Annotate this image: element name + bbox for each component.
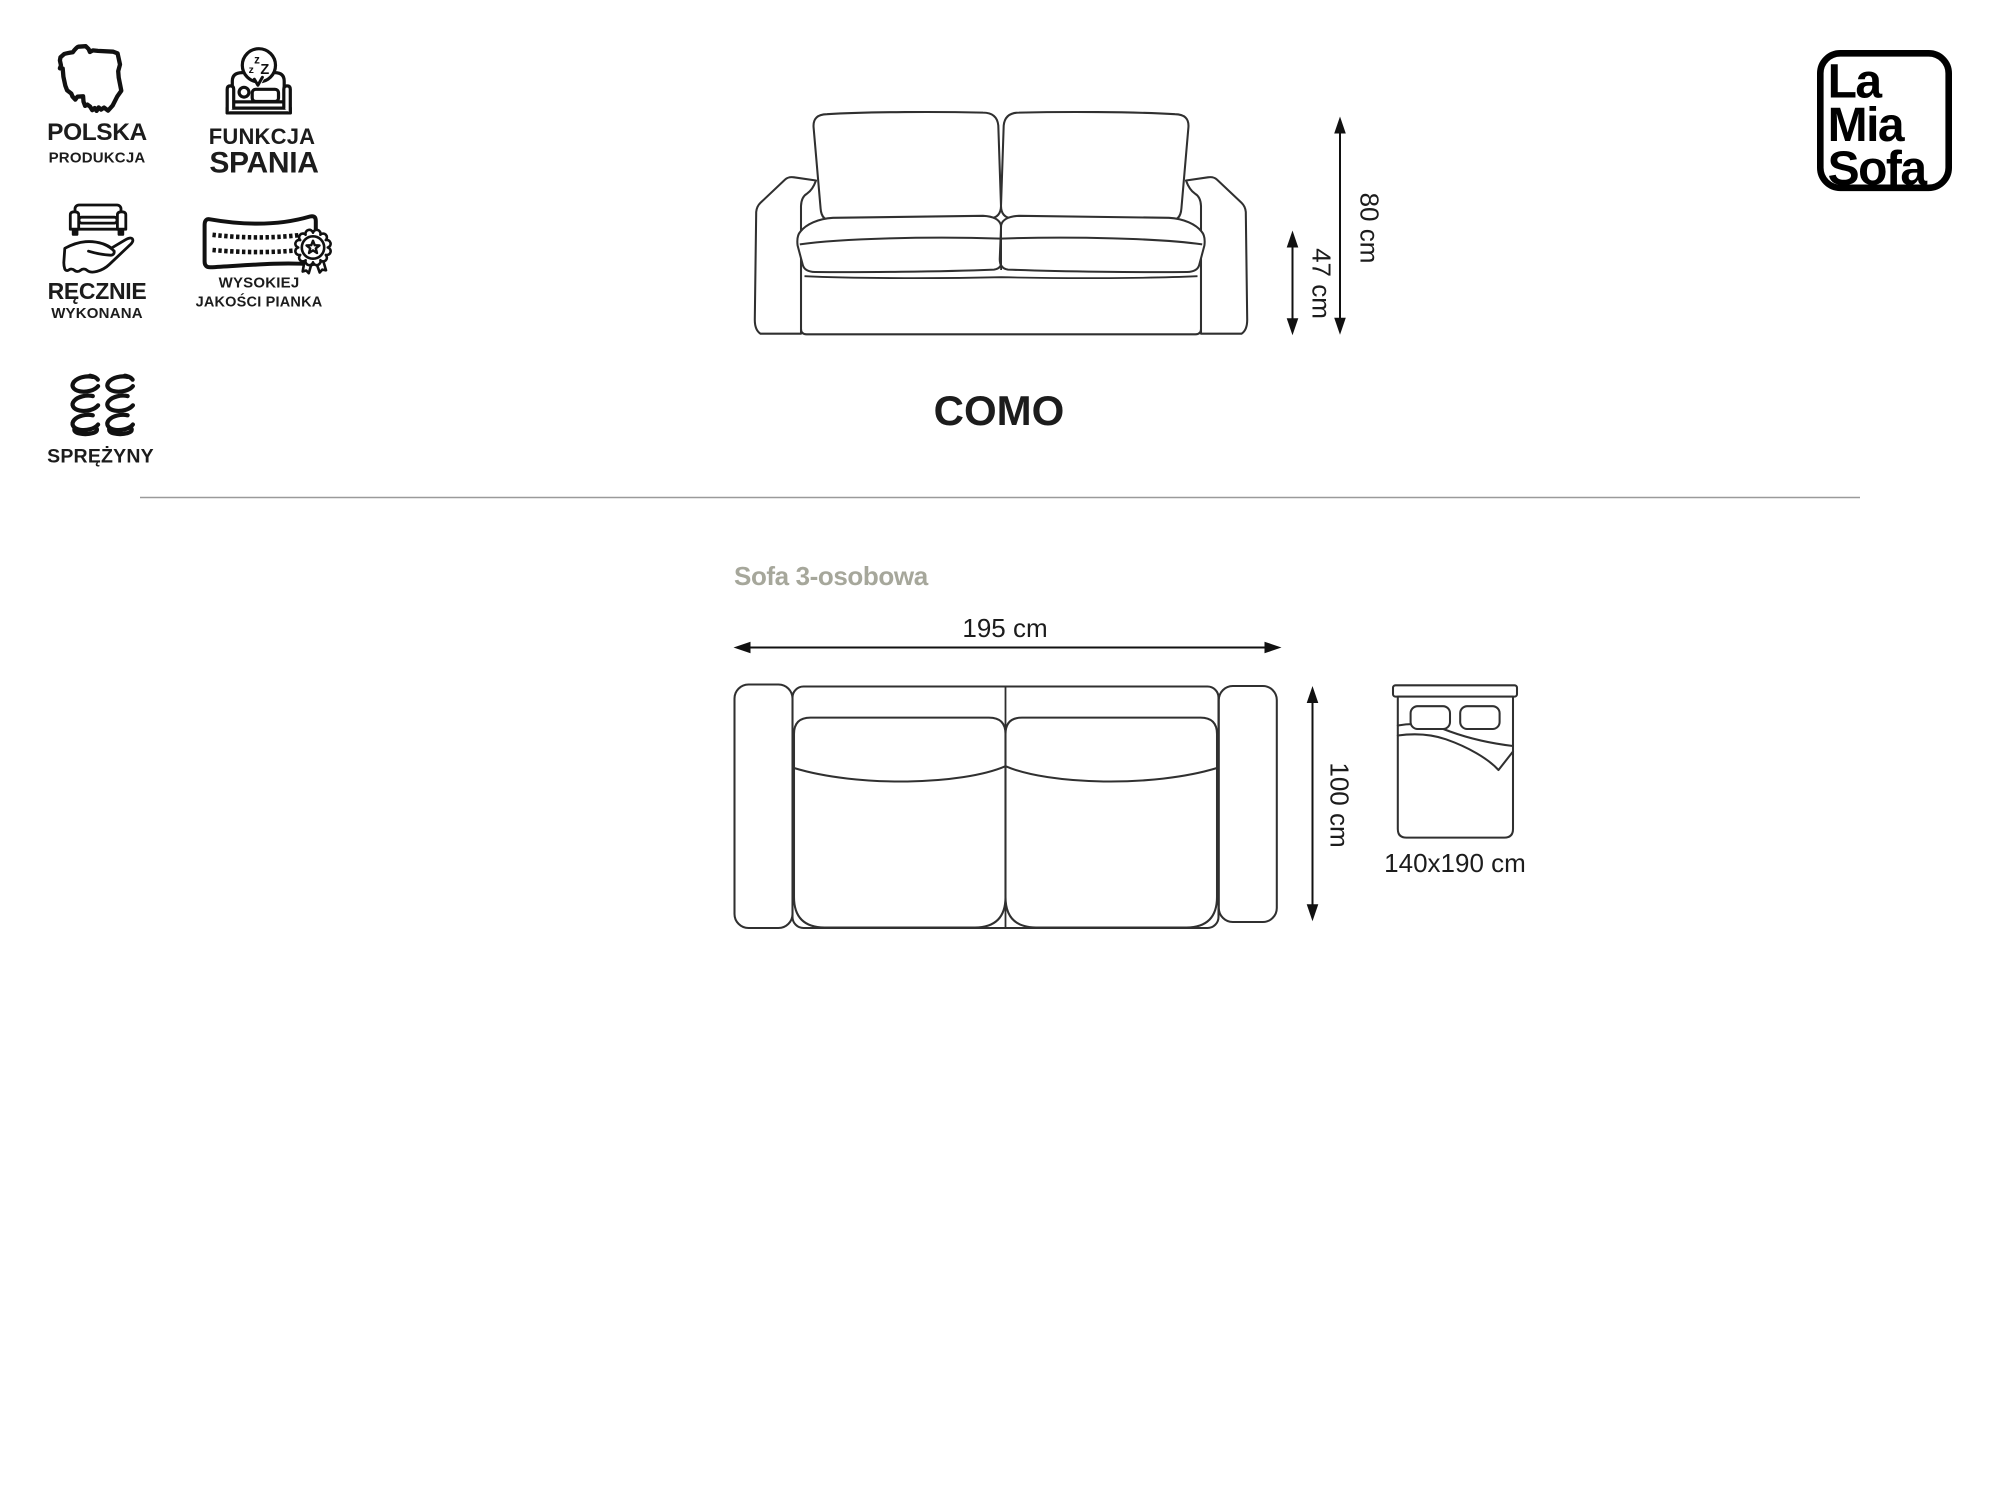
- svg-text:RĘCZNIE: RĘCZNIE: [48, 278, 147, 304]
- svg-text:Sofa: Sofa: [1828, 142, 1928, 195]
- svg-text:SPANIA: SPANIA: [209, 147, 318, 180]
- svg-text:80 cm: 80 cm: [1355, 193, 1385, 264]
- svg-text:47 cm: 47 cm: [1307, 248, 1337, 319]
- svg-text:COMO: COMO: [934, 387, 1065, 434]
- svg-text:140x190 cm: 140x190 cm: [1384, 848, 1526, 878]
- svg-text:WYKONANA: WYKONANA: [51, 305, 143, 322]
- svg-text:Z: Z: [260, 62, 269, 78]
- svg-text:Sofa 3-osobowa: Sofa 3-osobowa: [734, 561, 929, 591]
- svg-text:z: z: [254, 54, 260, 66]
- svg-text:WYSOKIEJ: WYSOKIEJ: [219, 275, 300, 292]
- svg-text:POLSKA: POLSKA: [47, 119, 147, 146]
- svg-text:SPRĘŻYNY: SPRĘŻYNY: [47, 445, 154, 468]
- svg-text:FUNKCJA: FUNKCJA: [209, 124, 316, 149]
- svg-text:100 cm: 100 cm: [1325, 762, 1355, 847]
- svg-text:195 cm: 195 cm: [962, 613, 1047, 643]
- svg-text:z: z: [249, 64, 254, 76]
- svg-text:PRODUKCJA: PRODUKCJA: [49, 150, 146, 167]
- svg-text:JAKOŚCI PIANKA: JAKOŚCI PIANKA: [196, 293, 323, 311]
